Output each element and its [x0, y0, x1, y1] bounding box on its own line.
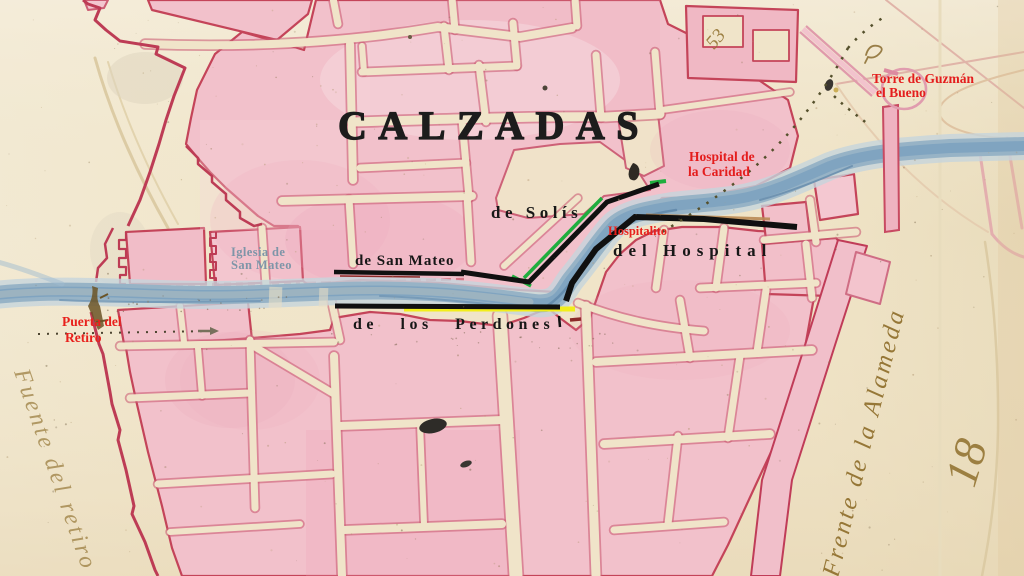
svg-text:San Mateo: San Mateo [231, 258, 292, 272]
svg-text:Retiro: Retiro [65, 330, 102, 345]
svg-text:CALZADAS: CALZADAS [338, 103, 650, 148]
svg-text:del Hospital: del Hospital [613, 241, 772, 260]
svg-text:de San Mateo: de San Mateo [355, 253, 455, 269]
svg-text:el Bueno: el Bueno [876, 85, 926, 100]
svg-text:Torre de Guzmán: Torre de Guzmán [872, 71, 974, 86]
svg-text:Hospitalito: Hospitalito [608, 224, 667, 238]
svg-text:Iglesia de: Iglesia de [231, 245, 285, 259]
svg-text:la Caridad: la Caridad [688, 164, 750, 179]
svg-text:Hospital de: Hospital de [689, 149, 755, 164]
svg-text:de Solís: de Solís [491, 203, 582, 222]
svg-text:Puerta del: Puerta del [62, 314, 122, 329]
svg-text:de los Perdones: de los Perdones [353, 316, 554, 333]
